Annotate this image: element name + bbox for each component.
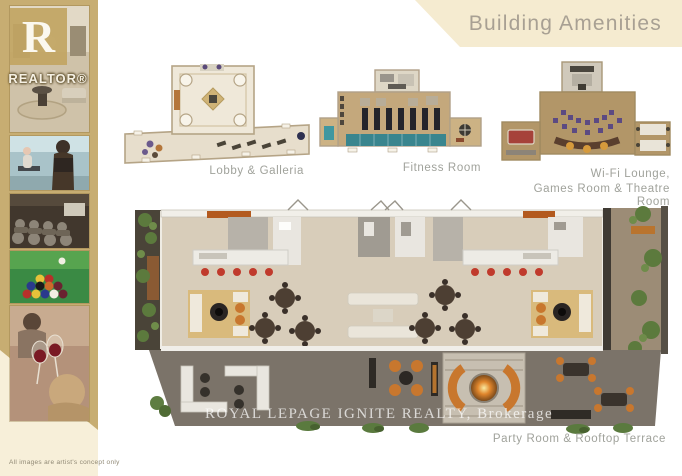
party-room-plan: ROYAL LEPAGE IGNITE REALTY, Brokerage [133, 198, 673, 438]
left-planters [135, 210, 161, 350]
theatre-photo [10, 194, 89, 248]
right-terrace-strip [603, 206, 668, 355]
fitness-room-figure: Fitness Room [318, 68, 483, 175]
fitness-entry [375, 70, 419, 92]
billiard-table [508, 130, 534, 144]
lobby-room [172, 64, 254, 134]
realtor-wordmark: REALTOR® [1, 71, 95, 86]
theatre-room [540, 92, 635, 154]
gym-photo-art [10, 136, 89, 190]
fitness-room-label: Fitness Room [318, 162, 483, 175]
lobby-galleria-figure: Lobby & Galleria [122, 62, 312, 178]
gym-photo [10, 136, 89, 190]
realtor-logo: R [10, 8, 67, 65]
brokerage-watermark: ROYAL LEPAGE IGNITE REALTY, Brokerage [205, 406, 553, 422]
wine-photo-art [10, 306, 89, 421]
fitness-room-plan [318, 68, 483, 160]
wifi-lounge-wing [635, 122, 670, 155]
theatre-photo-art [10, 194, 89, 248]
wifi-label-line1: Wi-Fi Lounge, [500, 168, 672, 181]
billiards-photo-art [10, 251, 89, 303]
realtor-logo-letter: R [22, 14, 55, 60]
projection-room [562, 62, 602, 92]
wine-photo [10, 306, 89, 421]
party-room-interior [161, 200, 603, 348]
page-title: Building Amenities [469, 0, 662, 47]
disclaimer-text: All images are artist's concept only [9, 459, 120, 466]
lobby-galleria-plan [122, 62, 312, 164]
pool-strip [346, 134, 446, 146]
party-room-label: Party Room & Rooftop Terrace [366, 433, 666, 445]
games-room-wing [502, 122, 540, 160]
fitness-left-wing [320, 118, 338, 146]
brochure-page: R REALTOR® [0, 0, 682, 476]
door-marks [288, 200, 471, 210]
right-fire-lounge [531, 290, 593, 338]
party-room-figure: ROYAL LEPAGE IGNITE REALTY, Brokerage [133, 198, 673, 438]
lobby-galleria-label: Lobby & Galleria [122, 165, 312, 178]
fitness-right-wing [450, 118, 481, 146]
fitness-main-room [338, 92, 450, 146]
header-band: Building Amenities [398, 0, 682, 47]
billiards-photo [10, 251, 89, 303]
wifi-games-theatre-plan [500, 60, 672, 166]
wifi-games-theatre-figure: Wi-Fi Lounge, Games Room & Theatre Room [500, 60, 672, 209]
left-fire-lounge [188, 290, 250, 338]
